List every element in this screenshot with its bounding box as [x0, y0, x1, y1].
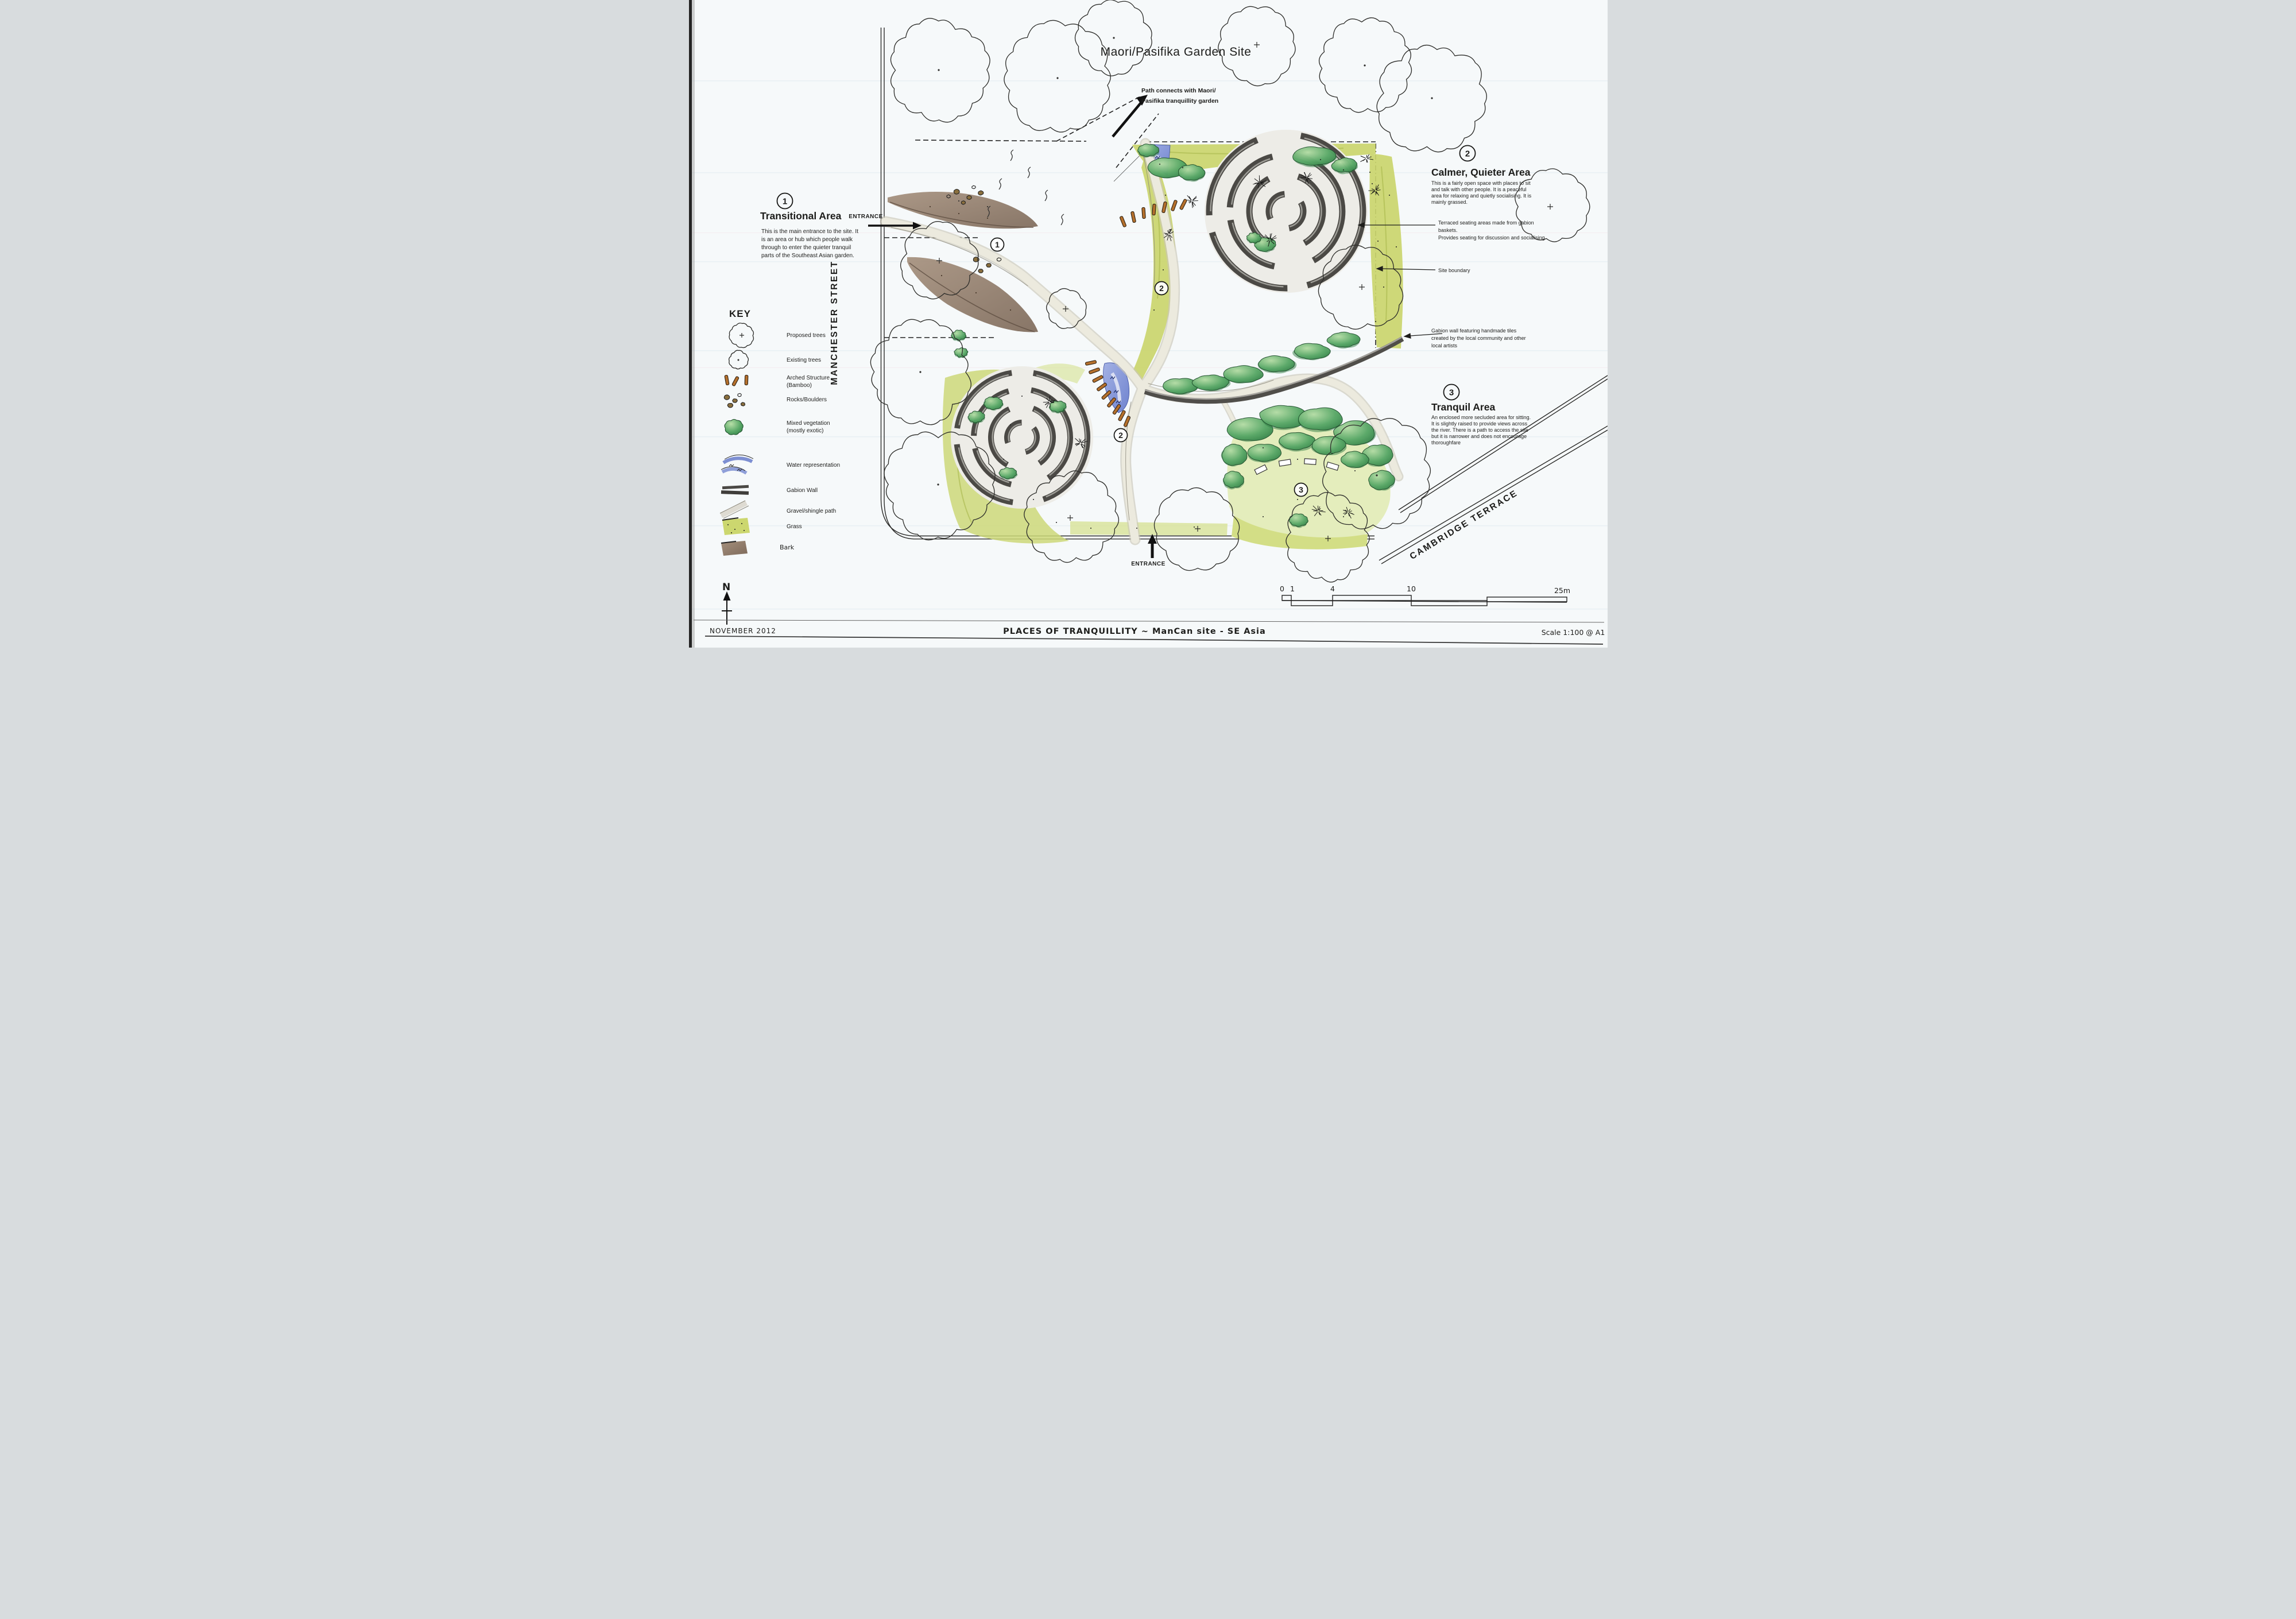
svg-text:thoroughfare: thoroughfare [1431, 440, 1461, 446]
scale-10: 10 [1407, 584, 1416, 593]
path-note-line1: Path connects with Maori/ [1141, 87, 1216, 94]
key-label-gravel-path: Gravel/shingle path [787, 508, 836, 514]
area-3-title: Tranquil Area [1431, 401, 1495, 413]
marker-1-label: 1 [995, 240, 1000, 249]
marker-calmer-lower: 2 [1114, 429, 1127, 442]
svg-text:Gabion wall featuring handmade: Gabion wall featuring handmade tiles [1431, 328, 1517, 334]
key-label-gabion-wall: Gabion Wall [787, 487, 818, 494]
key-label-existing-trees: Existing trees [787, 357, 821, 363]
area-1-number: 1 [782, 197, 787, 207]
key-label-bark: Bark [780, 544, 795, 551]
area-3-number: 3 [1449, 388, 1453, 398]
area-1-title: Transitional Area [760, 210, 842, 222]
marker-2-label: 2 [1159, 284, 1164, 293]
key-title: KEY [729, 308, 751, 319]
marker-3-label: 3 [1299, 485, 1303, 494]
key-label-proposed-trees: Proposed trees [787, 332, 826, 339]
svg-text:through to enter the quieter t: through to enter the quieter tranquil [761, 245, 851, 251]
callout-site-boundary: Site boundary [1438, 268, 1470, 273]
svg-text:(mostly exotic): (mostly exotic) [787, 428, 823, 434]
marker-calmer-top: 2 [1155, 282, 1168, 295]
svg-text:but it is narrower and does no: but it is narrower and does not encourag… [1431, 433, 1527, 439]
entrance-south-label: ENTRANCE [1131, 561, 1166, 567]
path-note-line2: Pasifika tranquillity garden [1141, 98, 1218, 104]
marker-transitional: 1 [990, 238, 1004, 251]
key-label-arched-structure: Arched Structure [787, 375, 830, 381]
svg-text:the river. There is a path to: the river. There is a path to access the… [1431, 427, 1528, 433]
scale-1: 1 [1290, 584, 1295, 593]
titleblock-date: NOVEMBER 2012 [710, 627, 776, 635]
svg-text:and talk with other people. It: and talk with other people. It is a peac… [1431, 187, 1527, 192]
marker-tranquil: 3 [1294, 483, 1307, 497]
scale-25m: 25m [1554, 586, 1570, 595]
key-label-rocks: Rocks/Boulders [787, 397, 827, 403]
svg-text:area for relaxing and quietly: area for relaxing and quietly socialisin… [1431, 193, 1532, 199]
key-label-mixed-vegetation: Mixed vegetation [787, 420, 830, 427]
svg-text:Provides seating for discussio: Provides seating for discussion and soci… [1438, 235, 1545, 241]
titleblock-title: PLACES OF TRANQUILLITY ~ ManCan site - S… [1003, 627, 1266, 636]
key-label-grass: Grass [787, 524, 802, 530]
area-2-number: 2 [1465, 149, 1469, 159]
svg-text:created by the local community: created by the local community and other [1431, 335, 1526, 341]
svg-text:is an area or hub which people: is an area or hub which people walk [761, 237, 853, 243]
marker-2b-label: 2 [1118, 431, 1123, 440]
area-1-body: This is the main entrance to the site. I… [761, 228, 858, 235]
svg-text:parts of the Southeast Asian g: parts of the Southeast Asian garden. [761, 253, 854, 259]
svg-text:(Bamboo): (Bamboo) [787, 382, 812, 389]
svg-text:mainly grassed.: mainly grassed. [1431, 199, 1468, 205]
area-2-title: Calmer, Quieter Area [1431, 166, 1531, 178]
area-2-body: This is a fairly open space with places … [1431, 180, 1531, 186]
key-label-water: Water representation [787, 462, 840, 468]
north-label: N [722, 582, 730, 593]
scale-4: 4 [1330, 584, 1335, 593]
street-manchester: MANCHESTER STREET [830, 260, 839, 385]
svg-text:local artists: local artists [1431, 343, 1458, 348]
svg-text:baskets.: baskets. [1438, 227, 1458, 233]
plan-canvas: 1 2 2 3 Maori/Pasifika Garden Site Path … [689, 0, 1608, 648]
scan-edge-strip [689, 0, 692, 648]
entrance-west-label: ENTRANCE [849, 214, 883, 220]
scale-0: 0 [1280, 584, 1284, 593]
svg-text:Terraced seating areas made fr: Terraced seating areas made from gabion [1438, 220, 1534, 226]
plan-title: Maori/Pasifika Garden Site [1100, 45, 1251, 59]
titleblock-scale: Scale 1:100 @ A1 [1541, 628, 1605, 637]
svg-text:It is slightly raised to provi: It is slightly raised to provide views a… [1431, 421, 1528, 427]
area-3-body: An enclosed more secluded area for sitti… [1431, 415, 1531, 420]
garden-plan-sheet: 1 2 2 3 Maori/Pasifika Garden Site Path … [689, 0, 1608, 648]
